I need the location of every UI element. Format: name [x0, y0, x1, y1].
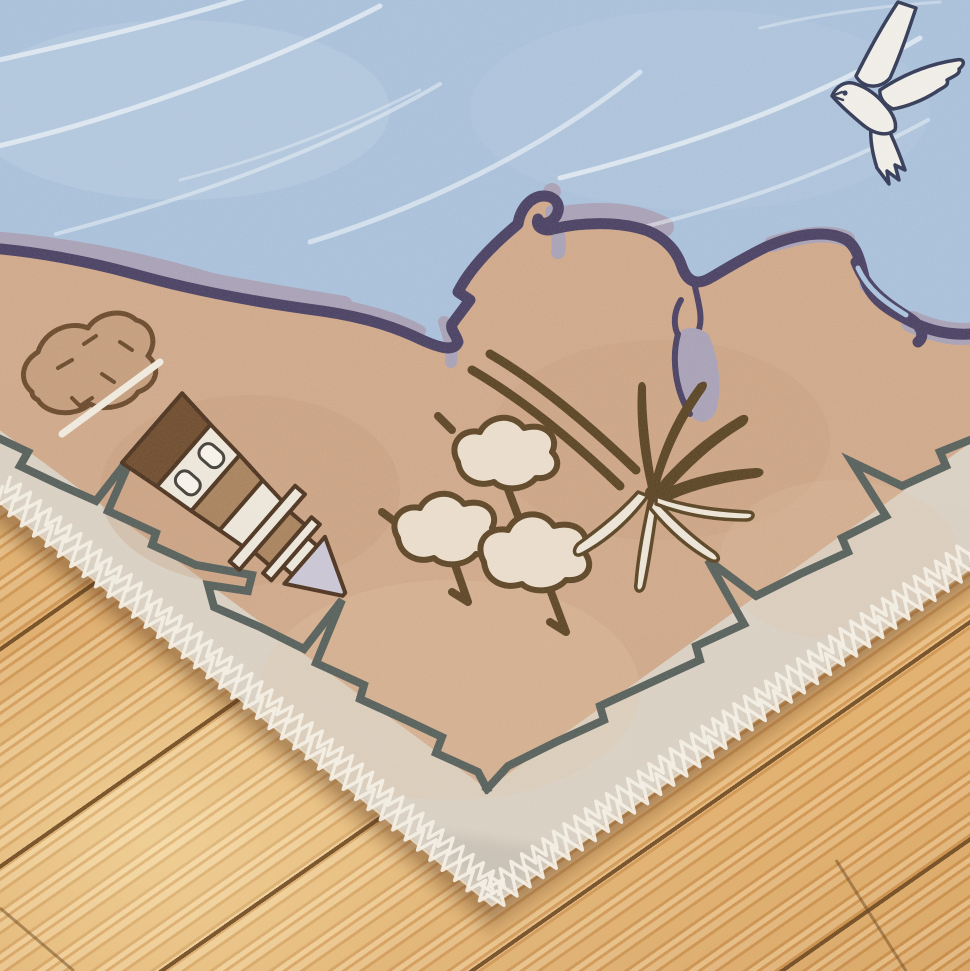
rug-illustration — [0, 0, 970, 971]
photo-seaside-rug-corner — [0, 0, 970, 971]
rug — [0, 0, 970, 971]
fabric-texture — [0, 0, 970, 971]
